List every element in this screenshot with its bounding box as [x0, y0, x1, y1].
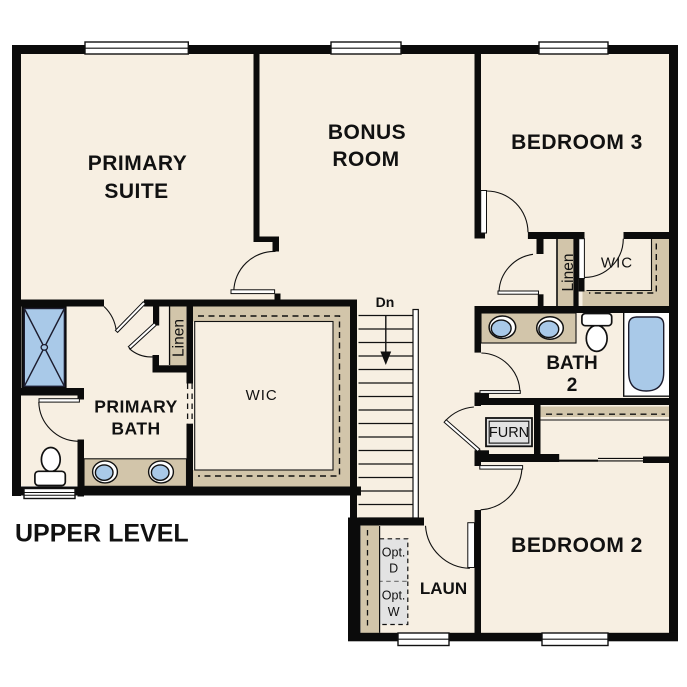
svg-text:BATH: BATH [111, 419, 160, 439]
svg-text:BONUS: BONUS [328, 121, 406, 144]
svg-text:FURN: FURN [489, 425, 529, 441]
svg-text:WIC: WIC [246, 387, 278, 404]
svg-text:W: W [388, 605, 400, 619]
svg-text:PRIMARY: PRIMARY [88, 152, 188, 175]
svg-text:Opt.: Opt. [382, 546, 406, 560]
svg-text:BATH: BATH [546, 353, 597, 374]
svg-text:UPPER LEVEL: UPPER LEVEL [15, 520, 189, 548]
svg-text:ROOM: ROOM [332, 148, 399, 171]
svg-text:Linen: Linen [170, 319, 187, 357]
svg-text:Opt.: Opt. [382, 589, 406, 603]
svg-text:Linen: Linen [560, 254, 577, 292]
svg-text:BEDROOM 2: BEDROOM 2 [511, 534, 643, 557]
svg-text:PRIMARY: PRIMARY [94, 397, 178, 417]
svg-text:LAUN: LAUN [420, 579, 467, 598]
svg-text:Dn: Dn [376, 294, 395, 310]
svg-text:BEDROOM 3: BEDROOM 3 [511, 131, 643, 154]
svg-text:WIC: WIC [601, 255, 633, 272]
svg-text:D: D [389, 561, 398, 575]
svg-text:SUITE: SUITE [104, 180, 168, 203]
svg-text:2: 2 [567, 375, 578, 396]
